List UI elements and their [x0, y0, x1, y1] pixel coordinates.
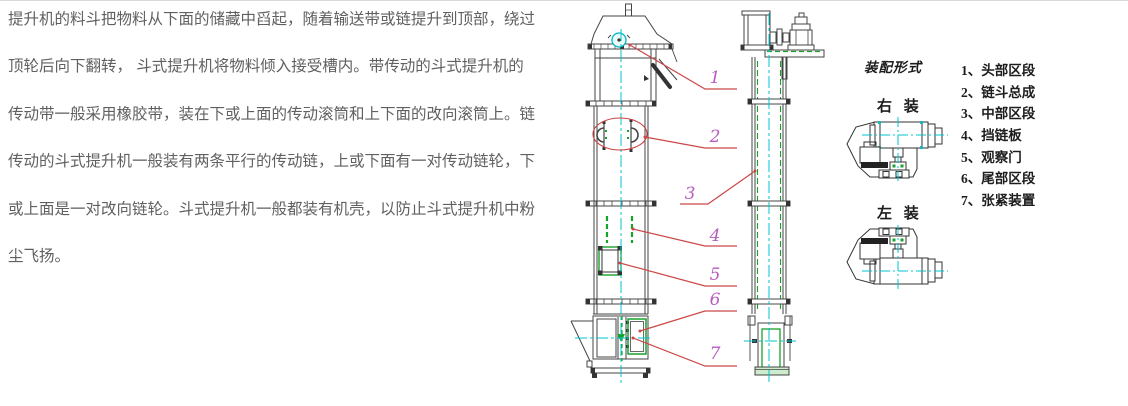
callout-number-4: 4	[706, 227, 724, 245]
boot-side	[748, 316, 792, 375]
legend-item: 4、挡链板	[961, 125, 1071, 147]
legend-item: 6、尾部区段	[961, 168, 1071, 190]
side-view	[741, 11, 824, 383]
callout-number-3: 3	[681, 185, 699, 203]
bucket-elevator-technical-drawing	[0, 1, 1128, 406]
legend-item: 2、链斗总成	[961, 82, 1071, 104]
parts-legend: 1、头部区段 2、链斗总成 3、中部区段 4、挡链板 5、观察门 6、尾部区段 …	[961, 60, 1071, 212]
assembly-type-title: 装配形式	[864, 56, 922, 76]
callout-number-2: 2	[706, 128, 724, 146]
callout-number-7: 7	[706, 345, 724, 363]
right-mount-drawing	[847, 117, 948, 183]
legend-item: 5、观察门	[961, 147, 1071, 169]
boot-section	[571, 314, 650, 378]
callout-number-1: 1	[706, 69, 724, 87]
legend-item: 3、中部区段	[961, 103, 1071, 125]
left-mount-label: 左 装	[877, 202, 923, 223]
legend-item: 7、张紧装置	[961, 190, 1071, 212]
page: 提升机的料斗把物料从下面的储藏中舀起，随着输送带或链提升到顶部，绕过 顶轮后向下…	[0, 0, 1128, 406]
front-view	[571, 4, 677, 383]
legend-item: 1、头部区段	[961, 60, 1071, 82]
callout-number-6: 6	[706, 291, 724, 309]
observation-door	[598, 246, 622, 275]
callout-number-5: 5	[706, 266, 724, 284]
left-mount-drawing	[847, 223, 948, 289]
right-mount-label: 右 装	[877, 95, 923, 116]
